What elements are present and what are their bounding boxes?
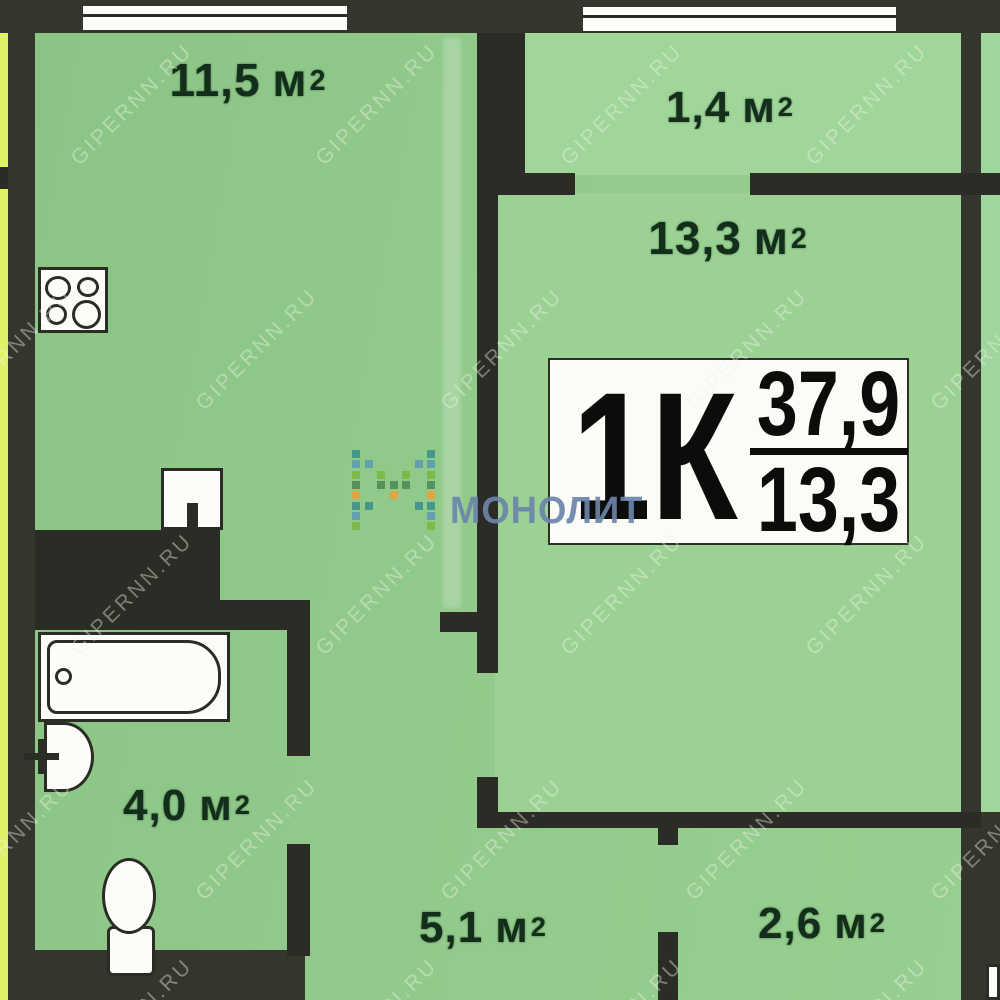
wall xyxy=(658,932,678,1000)
bathtub-icon xyxy=(38,632,230,722)
bathtub-drain-icon xyxy=(55,668,72,685)
toilet-bowl-icon xyxy=(102,858,156,934)
wall xyxy=(287,630,310,756)
kitchen-sink-icon xyxy=(161,468,223,530)
wall xyxy=(0,167,8,189)
total-area-value: 37,9 xyxy=(757,361,900,447)
stove-burner-icon xyxy=(72,300,101,329)
stove-icon xyxy=(38,267,108,333)
floor-plan: 11,5м2 1,4м2 13,3м2 4,0м2 5,1м2 2,6м2 1К… xyxy=(0,0,1000,1000)
wall xyxy=(35,600,310,630)
wall xyxy=(35,530,220,602)
wall xyxy=(8,950,305,1000)
room-area-label-storage: 2,6м2 xyxy=(758,899,886,949)
wall xyxy=(750,173,1000,195)
bathtub-inner-icon xyxy=(47,640,221,714)
room-area-label-balcony: 1,4м2 xyxy=(666,83,794,133)
room-area-label-bathroom: 4,0м2 xyxy=(123,781,251,831)
kitchen-sink-faucet-icon xyxy=(187,503,198,527)
wall xyxy=(477,33,498,673)
area-fraction: 37,9 13,3 xyxy=(750,361,908,543)
stove-burner-icon xyxy=(77,277,99,297)
window-balcony-mullion xyxy=(583,15,896,18)
wall xyxy=(961,0,981,1000)
living-area-value: 13,3 xyxy=(757,457,900,543)
developer-logo-text: МОНОЛИТ xyxy=(450,490,643,533)
room-area-label-living-room: 13,3м2 xyxy=(648,211,807,265)
stove-burner-icon xyxy=(46,304,67,325)
wall xyxy=(477,812,981,828)
neighbor-fixture-icon xyxy=(986,964,1000,1000)
window-kitchen xyxy=(83,6,347,30)
wall xyxy=(287,844,310,956)
stove-burner-icon xyxy=(45,276,71,300)
wall xyxy=(440,612,478,632)
wall xyxy=(8,33,35,953)
window-balcony xyxy=(583,7,896,31)
room-area-label-hallway: 5,1м2 xyxy=(419,903,547,953)
wall xyxy=(498,173,575,195)
wall xyxy=(658,828,678,845)
room-area-label-kitchen: 11,5м2 xyxy=(170,53,327,107)
sink-tap-cross-icon xyxy=(38,739,45,774)
window-kitchen-mullion xyxy=(83,14,347,17)
neighbor-strip-right xyxy=(981,33,1000,812)
